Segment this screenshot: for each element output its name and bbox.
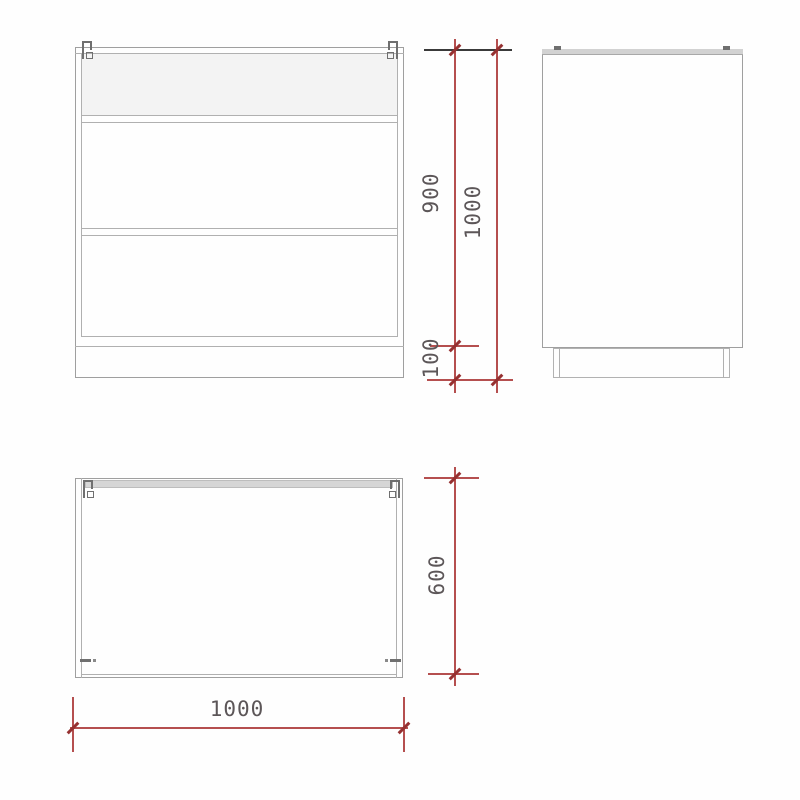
dimension-line-1000-width [70,727,408,729]
cam-prong [396,41,398,59]
plan-left-inner-edge [81,478,82,678]
front-left-inner-edge [81,53,82,336]
cam-foot [389,491,396,498]
dimension-line-600 [454,467,456,686]
cam-foot [86,52,93,59]
cam-lock-icon [83,480,95,499]
dimension-label-100: 100 [419,338,443,379]
cam-foot [387,52,394,59]
dimension-line-1000 [496,39,498,393]
plan-bottom-inner-line [81,674,397,675]
fitting-dash [80,659,91,662]
front-shelf-line [81,115,398,116]
plan-back-panel [85,480,393,488]
front-bottom-panel-line [81,336,398,337]
cam-lock-icon [82,41,94,60]
bottom-extension-line [427,379,513,381]
technical-drawing-canvas: 900 1000 100 [0,0,800,800]
cam-prong [83,480,85,498]
dowel-mark-icon [723,46,730,50]
dimension-label-900: 900 [419,173,443,214]
front-plinth-top-line [75,346,404,347]
side-plinth-inner-edge [559,348,560,378]
front-top-panel-shading [82,54,398,115]
dimension-label-1000-vertical: 1000 [461,185,485,240]
dimension-label-1000-horizontal: 1000 [210,697,265,721]
dimension-line-900 [454,39,456,393]
cam-foot [87,491,94,498]
side-top-panel [542,49,743,55]
fitting-dash [390,659,401,662]
cam-prong [390,480,392,489]
cam-prong [398,480,400,498]
cam-prong [91,480,93,489]
plan-right-inner-edge [396,478,397,678]
dowel-mark-icon [554,46,561,50]
cam-prong [82,41,84,59]
cam-lock-icon [386,41,398,60]
cam-prong [90,41,92,50]
front-right-inner-edge [397,53,398,336]
dimension-label-600: 600 [425,555,449,596]
fitting-mark-icon [384,658,401,663]
plan-outline [75,478,403,678]
front-shelf-line [81,122,398,123]
side-plinth-inner-edge [723,348,724,378]
fitting-mark-icon [80,658,97,663]
front-shelf-line [81,228,398,229]
front-shelf-line [81,235,398,236]
cam-lock-icon [388,480,400,499]
cam-prong [388,41,390,50]
side-plinth-outline [553,348,730,378]
fitting-dot [385,659,388,662]
fitting-dot [93,659,96,662]
side-outline [542,49,743,348]
